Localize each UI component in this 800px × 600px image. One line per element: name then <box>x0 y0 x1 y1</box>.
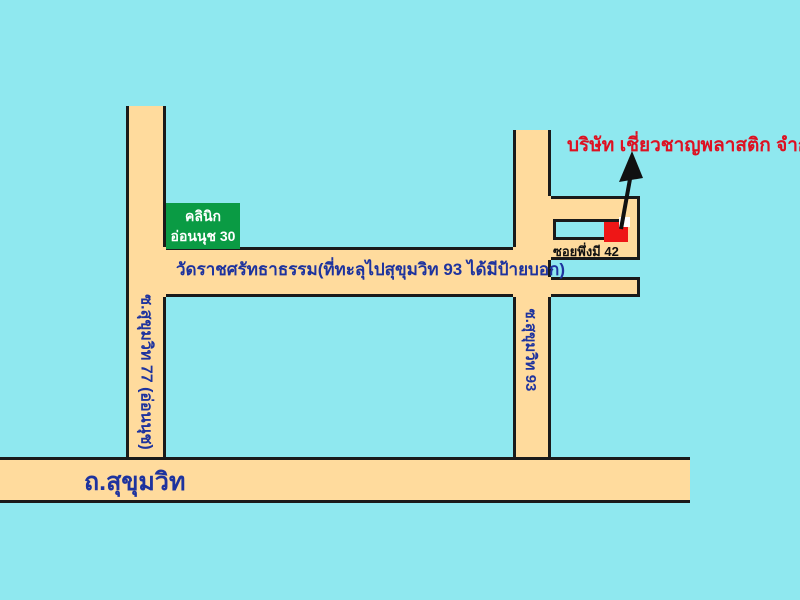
road-border <box>166 294 513 297</box>
road-border <box>637 277 640 297</box>
sukhumvit77-road-label: ซ.สุขุมวิท 77 (อ่อนนุช) <box>134 294 159 449</box>
road-border <box>0 457 690 460</box>
company-name-label: บริษัท เชี่ยวชาญพลาสติก จำกัด <box>567 130 800 160</box>
temple-note-label: วัดราชศรัทธาธรรม(ที่ทะลุไปสุขุมวิท 93 ได… <box>176 256 565 283</box>
directions-map: คลินิก อ่อนนุช 30 บริษัท เชี่ยวชาญพลาสติ… <box>0 0 800 600</box>
road-border <box>551 294 640 297</box>
road-border <box>513 297 516 457</box>
road-border <box>163 297 166 457</box>
road-border <box>513 130 516 247</box>
soi-phuengmi42-label: ซอยพึ่งมี 42 <box>553 241 619 262</box>
road-border <box>548 297 551 457</box>
road-border <box>126 106 129 458</box>
road-border <box>548 130 551 196</box>
clinic-onnut30-sign: คลินิก อ่อนนุช 30 <box>166 203 240 249</box>
clinic-sign-line2: อ่อนนุช 30 <box>171 226 236 246</box>
clinic-sign-line1: คลินิก <box>185 206 221 226</box>
sukhumvit93-road-label: ซ.สุขุมวิท 93 <box>519 309 543 392</box>
sukhumvit-main-road-label: ถ.สุขุมวิท <box>84 462 185 502</box>
